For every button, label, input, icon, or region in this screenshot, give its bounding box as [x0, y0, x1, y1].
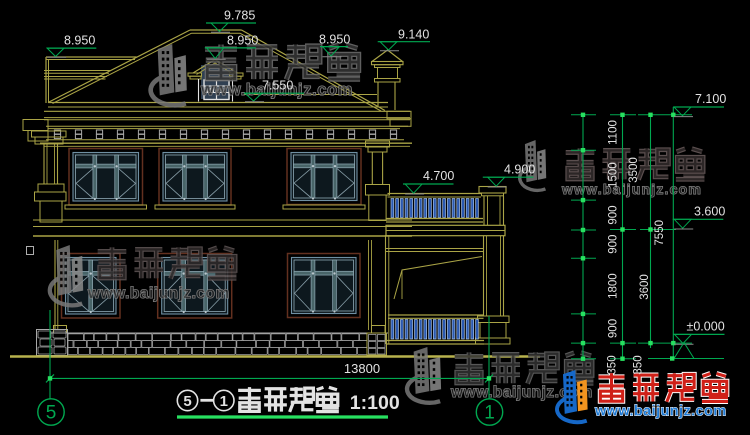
svg-text:7550: 7550: [654, 220, 666, 246]
svg-text:1: 1: [220, 393, 228, 410]
svg-text:13800: 13800: [344, 361, 380, 376]
svg-text:900: 900: [608, 319, 620, 338]
svg-text:www.baijunjz.com: www.baijunjz.com: [87, 285, 230, 302]
svg-text:7.100: 7.100: [695, 92, 726, 106]
svg-text:www.baijunjz.com: www.baijunjz.com: [594, 404, 727, 420]
svg-text:1:100: 1:100: [350, 392, 400, 414]
svg-text:1500: 1500: [608, 162, 620, 188]
svg-text:7.550: 7.550: [262, 79, 293, 93]
svg-text:5: 5: [46, 403, 57, 424]
svg-text:9.140: 9.140: [398, 28, 429, 42]
svg-text:8.950: 8.950: [64, 34, 95, 48]
svg-text:1: 1: [484, 403, 495, 424]
svg-text:1800: 1800: [608, 273, 620, 299]
svg-text:5: 5: [183, 393, 191, 410]
svg-text:350: 350: [607, 355, 619, 374]
svg-text:3600: 3600: [639, 274, 651, 300]
svg-text:4.700: 4.700: [423, 169, 454, 183]
svg-text:4.900: 4.900: [504, 163, 535, 177]
svg-text:3.600: 3.600: [694, 205, 725, 219]
svg-text:8.950: 8.950: [319, 33, 350, 47]
svg-text:8.950: 8.950: [227, 34, 258, 48]
svg-text:3500: 3500: [628, 157, 640, 183]
svg-text:350: 350: [633, 355, 645, 374]
svg-text:±0.000: ±0.000: [687, 320, 725, 334]
svg-text:900: 900: [608, 235, 620, 254]
svg-text:1100: 1100: [608, 120, 620, 145]
svg-text:9.785: 9.785: [224, 9, 255, 23]
svg-text:900: 900: [608, 205, 620, 224]
